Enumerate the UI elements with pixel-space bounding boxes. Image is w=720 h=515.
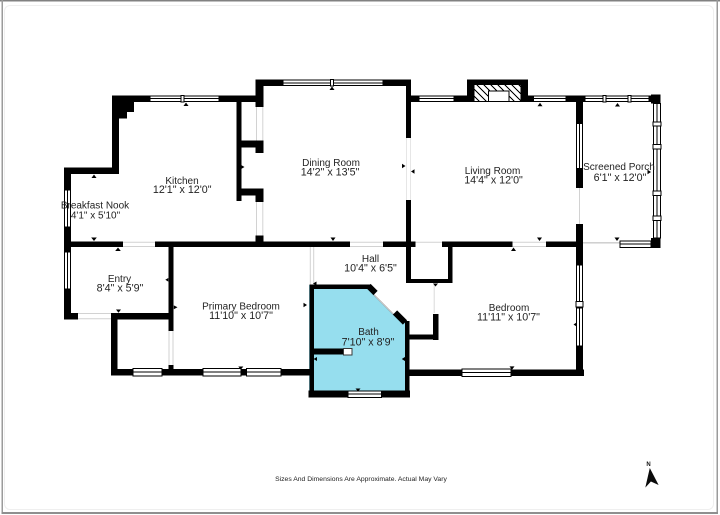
svg-text:N: N: [646, 462, 650, 468]
svg-text:4'1" x 5'10": 4'1" x 5'10": [71, 210, 121, 221]
svg-text:14'4" x 12'0": 14'4" x 12'0": [464, 175, 523, 187]
svg-text:7'10" x 8'9": 7'10" x 8'9": [342, 337, 395, 349]
svg-text:12'1" x 12'0": 12'1" x 12'0": [153, 184, 212, 196]
svg-text:14'2" x 13'5": 14'2" x 13'5": [301, 167, 360, 179]
svg-text:8'4" x 5'9": 8'4" x 5'9": [97, 283, 144, 295]
svg-text:6'1" x 12'0": 6'1" x 12'0": [594, 172, 647, 184]
svg-text:Sizes And Dimensions Are Appro: Sizes And Dimensions Are Approximate. Ac…: [275, 476, 447, 483]
svg-text:11'11" x 10'7": 11'11" x 10'7": [477, 312, 540, 324]
svg-text:11'10" x 10'7": 11'10" x 10'7": [209, 310, 273, 322]
svg-text:10'4" x 6'5": 10'4" x 6'5": [344, 263, 397, 275]
